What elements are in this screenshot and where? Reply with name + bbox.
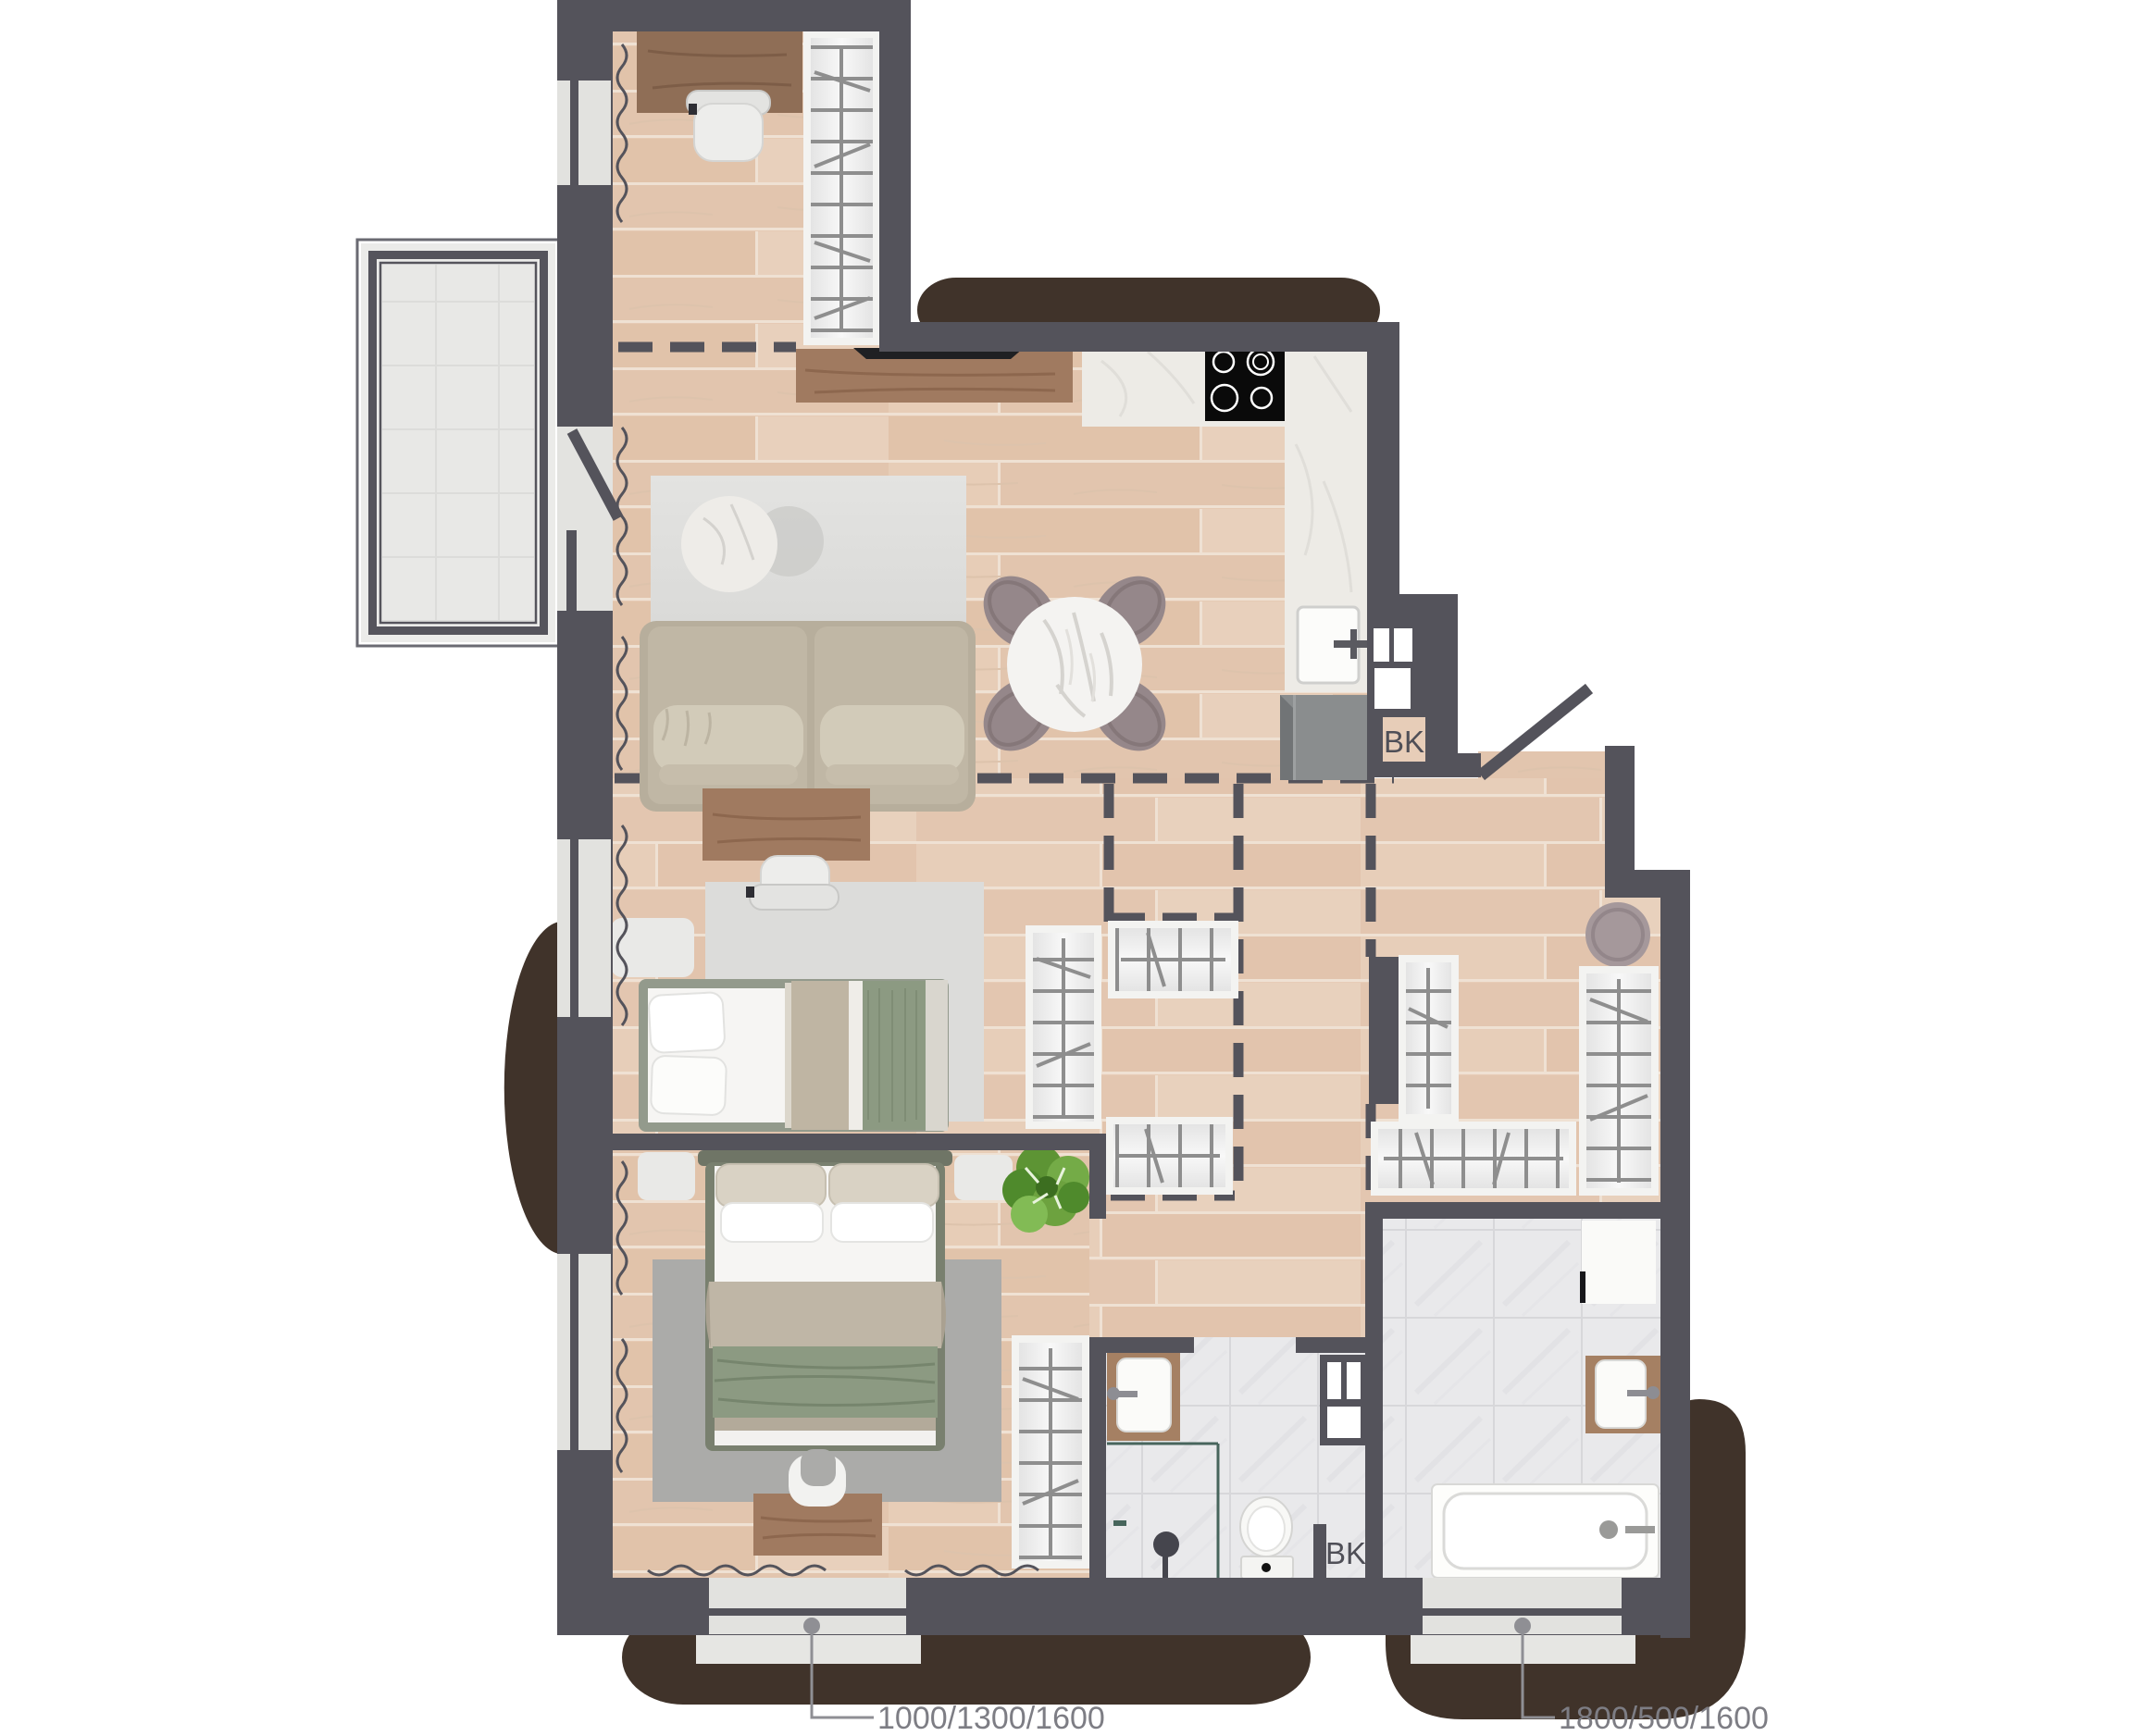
svg-text:1000/1300/1600: 1000/1300/1600 — [877, 1701, 1105, 1736]
svg-text:1800/500/1600: 1800/500/1600 — [1559, 1701, 1769, 1736]
svg-text:BK: BK — [1384, 725, 1424, 759]
svg-text:BK: BK — [1325, 1536, 1366, 1570]
